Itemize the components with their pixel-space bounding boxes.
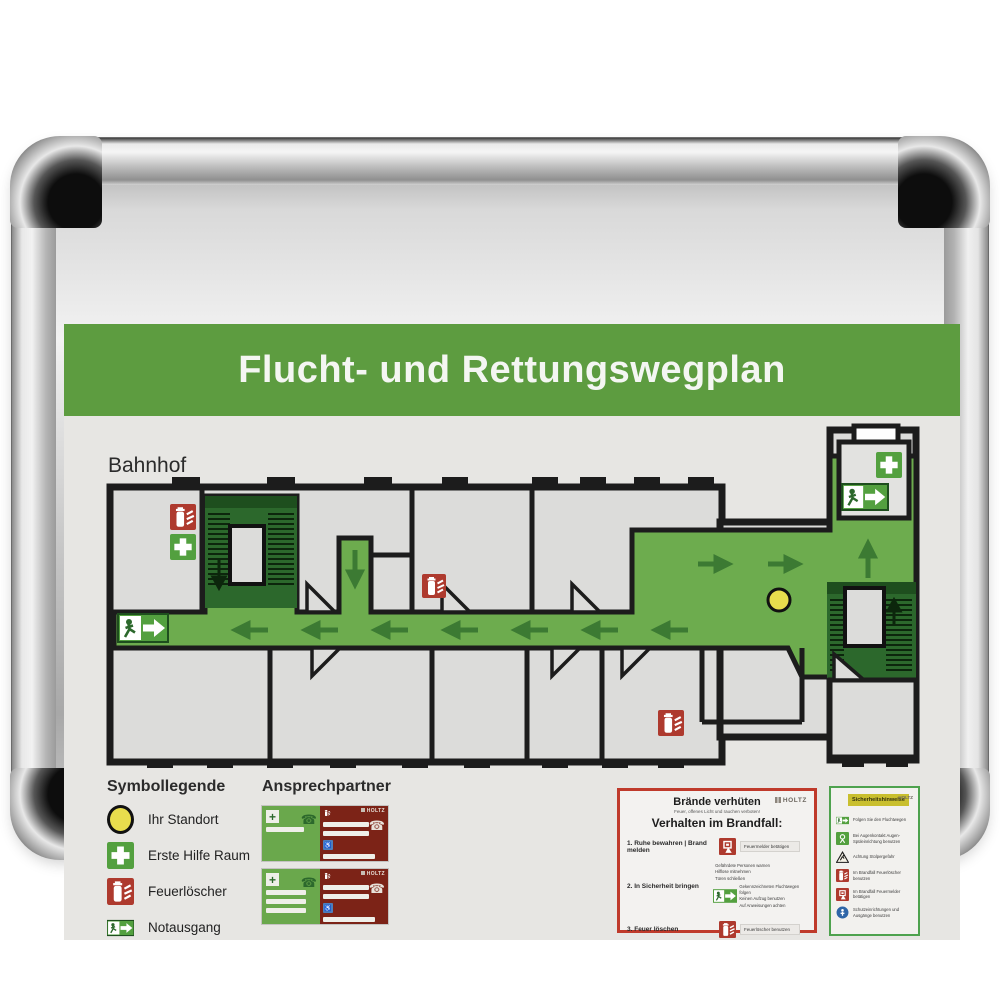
legend-item-feuerloescher: Feuerlöscher: [107, 878, 250, 905]
text-placeholder: [266, 827, 304, 832]
accessibility-icon: ♿: [323, 840, 333, 850]
phone-icon: ☎: [301, 812, 317, 828]
contact-card: + ☎ HOLTZ ♿ ☎: [262, 806, 388, 861]
aluminum-frame: Flucht- und Rettungswegplan: [12, 138, 988, 858]
fire-step-2-bullets: Gekennzeichneten Fluchtwegen folgen Kein…: [739, 884, 807, 909]
fire-step-2-details: Gefährdete Personen warnen Hilflose mitn…: [713, 863, 807, 909]
fire-step-1: 1. Ruhe bewahren | Brand melden Feuermel…: [627, 838, 807, 855]
accessibility-icon: ♿: [323, 903, 333, 913]
fire-panel-subtitle: Feuer, offenes Licht und rauchen verbote…: [627, 809, 807, 814]
floor-plan: Bahnhof: [102, 422, 922, 768]
contact-card: + ☎ HOLTZ ♿ ☎: [262, 869, 388, 924]
text-placeholder: [266, 899, 306, 904]
brand-logo: HOLTZ: [361, 808, 385, 814]
fire-extinguisher-icon: [658, 710, 684, 736]
brand-logo: HOLTZ: [361, 871, 385, 877]
brand-logo: HOLTZ: [775, 797, 807, 804]
fire-step-2: 2. In Sicherheit bringen Gefährdete Pers…: [627, 863, 807, 909]
first-aid-icon: +: [266, 810, 279, 823]
emergency-exit-icon: [713, 888, 737, 904]
first-aid-icon: +: [266, 873, 279, 886]
plan-header: Flucht- und Rettungswegplan: [64, 324, 960, 416]
fire-step-2-bullets: Gefährdete Personen warnen Hilflose mitn…: [715, 863, 807, 882]
first-aid-icon: [107, 842, 134, 869]
warning-icon: [836, 851, 849, 864]
fire-extinguisher-icon: [836, 869, 849, 882]
contact-card-right: HOLTZ ♿ ☎: [320, 869, 388, 924]
legend-label: Ihr Standort: [148, 812, 219, 827]
emergency-exit-icon: [842, 484, 888, 510]
safety-panel-header: Sicherheitshinweise HOLTZ: [836, 792, 913, 808]
location-dot-icon: [768, 589, 790, 611]
frame-corner-top-left: [10, 136, 102, 228]
fire-extinguisher-icon: [719, 921, 736, 938]
legend-label: Erste Hilfe Raum: [148, 848, 250, 863]
contact-card-left: + ☎: [262, 869, 320, 924]
escape-plan-board: Flucht- und Rettungswegplan: [64, 324, 960, 940]
fire-alarm-icon: [836, 888, 849, 901]
contact-card-right: HOLTZ ♿ ☎: [320, 806, 388, 861]
brand-logo: HOLTZ: [898, 795, 913, 800]
fire-extinguisher-icon: [323, 808, 331, 818]
safety-row: Schutzeinrichtungen und Ausgänge benutze…: [836, 906, 913, 919]
legend-label: Feuerlöscher: [148, 884, 227, 899]
page-title: Flucht- und Rettungswegplan: [238, 349, 786, 392]
elevator-right: [845, 588, 884, 646]
frame-corner-top-right: [898, 136, 990, 228]
text-placeholder: [323, 854, 375, 859]
legend-item-erste-hilfe: Erste Hilfe Raum: [107, 842, 250, 869]
fire-behaviour-panel: Brände verhüten HOLTZ Feuer, offenes Lic…: [617, 788, 817, 933]
text-placeholder: [323, 885, 369, 890]
fire-step-3: 3. Feuer löschen Feuerlöscher benutzen: [627, 921, 807, 938]
legend-label: Notausgang: [148, 920, 221, 935]
fire-panel-heading: Verhalten im Brandfall:: [627, 816, 807, 830]
phone-icon: ☎: [369, 818, 385, 834]
text-placeholder: [323, 822, 369, 827]
contact-card-left: + ☎: [262, 806, 320, 861]
fire-extinguisher-icon: [323, 871, 331, 881]
plan-location-label: Bahnhof: [108, 454, 186, 477]
phone-icon: ☎: [369, 881, 385, 897]
fire-panel-header: Brände verhüten HOLTZ Feuer, offenes Lic…: [627, 796, 807, 830]
text-placeholder: [266, 908, 306, 913]
location-dot-icon: [107, 806, 134, 833]
text-placeholder: [323, 831, 369, 836]
floor-plan-svg: Bahnhof: [102, 422, 922, 768]
room: [830, 680, 916, 757]
safety-row: Folgen Sie den Fluchtwegen: [836, 814, 913, 827]
contacts-title: Ansprechpartner: [262, 778, 391, 796]
legend-item-standort: Ihr Standort: [107, 806, 250, 833]
eye-wash-icon: [836, 832, 849, 845]
safety-row: Im Brandfall Feuerlöscher benutzen: [836, 869, 913, 882]
emergency-exit-icon: [836, 814, 849, 827]
phone-icon: ☎: [301, 875, 317, 891]
fire-extinguisher-icon: [170, 504, 196, 530]
text-placeholder: [323, 894, 369, 899]
safety-row: Bei Augenkontakt Augen-Spüleinrichtung b…: [836, 832, 913, 845]
legend-title: Symbollegende: [107, 778, 250, 796]
text-placeholder: [323, 917, 375, 922]
stairs-left: [205, 496, 297, 608]
mandatory-icon: [836, 906, 849, 919]
first-aid-icon: [876, 452, 902, 478]
legend-item-notausgang: Notausgang: [107, 914, 250, 940]
contacts-section: Ansprechpartner + ☎ HOLTZ ♿ ☎: [262, 778, 391, 932]
fire-extinguisher-icon: [107, 878, 134, 905]
emergency-exit-icon: [118, 614, 168, 642]
fire-alarm-icon: [719, 838, 736, 855]
emergency-exit-icon: [107, 919, 134, 937]
safety-row: Im Brandfall Feuermelder betätigen: [836, 888, 913, 901]
fire-extinguisher-icon: [422, 574, 446, 598]
elevator-left: [230, 526, 264, 584]
safety-hints-panel: Sicherheitshinweise HOLTZ Folgen Sie den…: [829, 786, 920, 936]
safety-row: Achtung Stolpergefahr: [836, 851, 913, 864]
first-aid-icon: [170, 534, 196, 560]
symbol-legend: Symbollegende Ihr Standort Erste Hilfe R…: [107, 778, 250, 940]
